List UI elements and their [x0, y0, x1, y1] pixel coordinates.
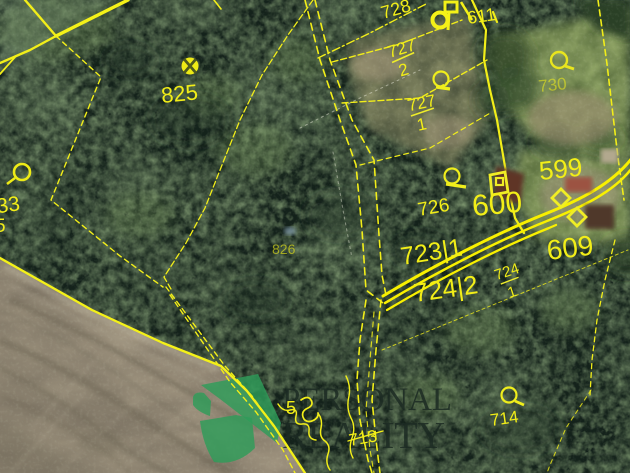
- svg-text:825: 825: [160, 79, 199, 108]
- svg-text:611: 611: [466, 4, 497, 28]
- svg-text:714: 714: [489, 407, 520, 430]
- svg-text:5: 5: [286, 398, 296, 418]
- svg-text:730: 730: [537, 74, 567, 96]
- svg-text:600: 600: [471, 186, 524, 223]
- svg-text:599: 599: [537, 152, 583, 186]
- svg-text:5: 5: [0, 216, 6, 237]
- svg-text:PERSONAL: PERSONAL: [282, 382, 452, 418]
- svg-text:609: 609: [545, 229, 595, 265]
- svg-text:826: 826: [272, 241, 296, 257]
